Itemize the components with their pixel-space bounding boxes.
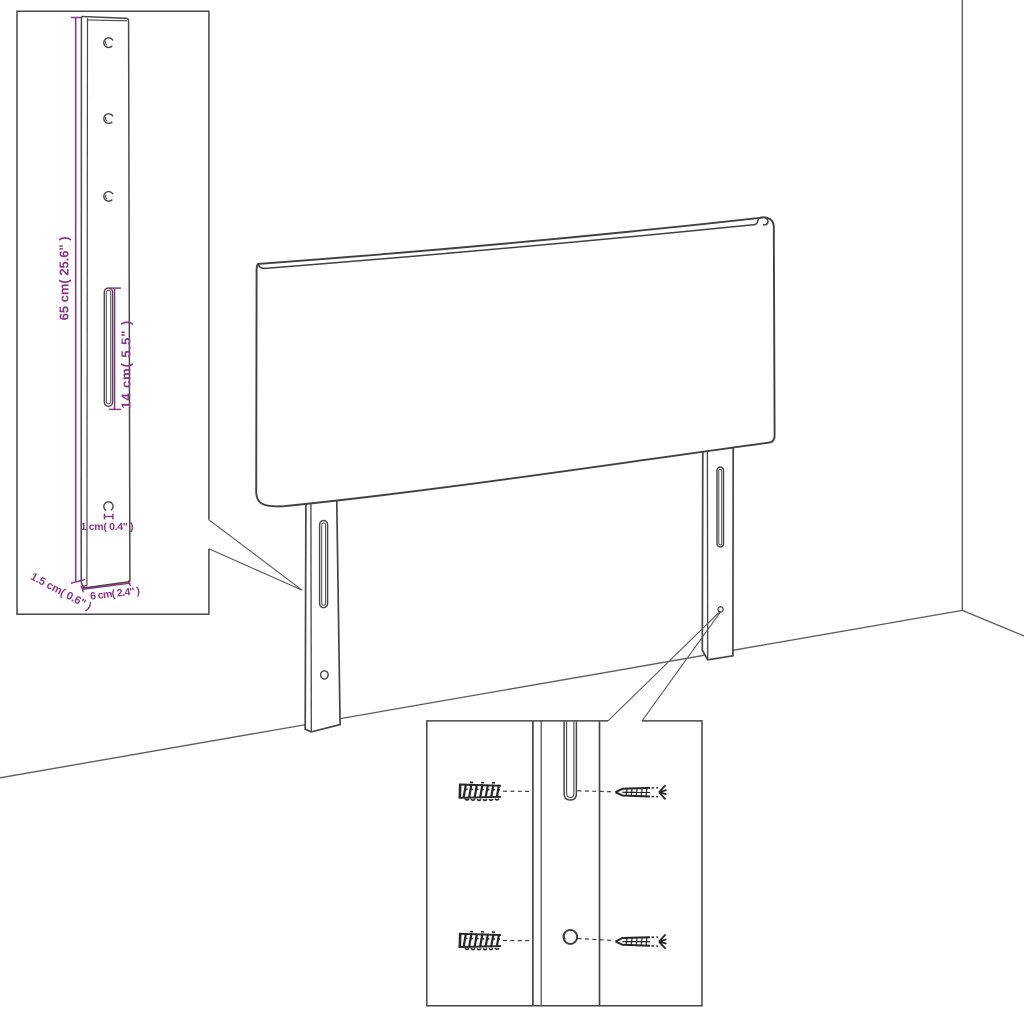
svg-text:65 cm( 25.6" ): 65 cm( 25.6" )	[56, 236, 71, 320]
svg-text:14 cm( 5.5" ): 14 cm( 5.5" )	[118, 321, 133, 409]
svg-text:1 cm( 0.4" ): 1 cm( 0.4" )	[81, 521, 134, 533]
